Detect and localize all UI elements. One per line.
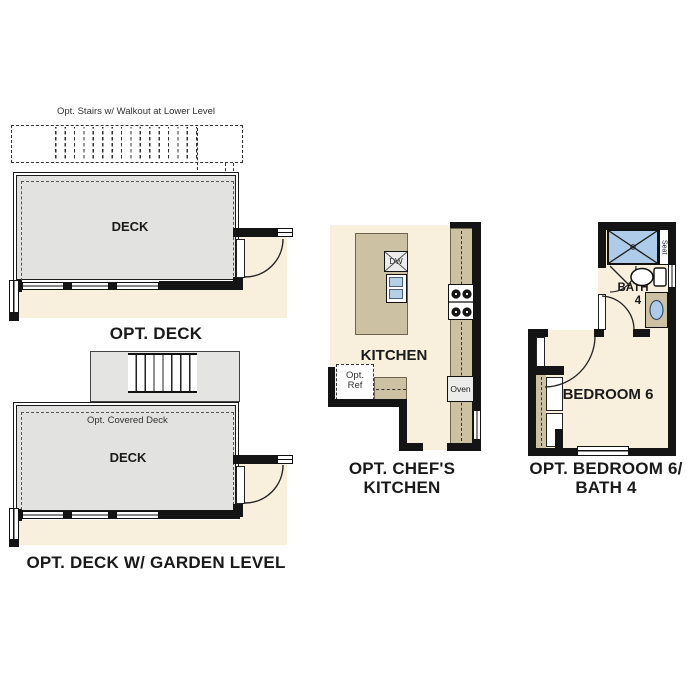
- sink-basin: [389, 289, 403, 299]
- railing-segment: [22, 282, 64, 290]
- counter-dashed-line: [376, 389, 406, 390]
- railing-post: [64, 511, 71, 519]
- railing-segment: [116, 282, 159, 290]
- door-leaf: [236, 239, 245, 278]
- stair-treads: [128, 353, 197, 393]
- bath-room-label-line2: 4: [635, 295, 641, 307]
- seat-label: Seat: [661, 240, 668, 254]
- wall-corner: [233, 277, 243, 290]
- cooktop: [448, 284, 474, 320]
- closet-door-panel: [546, 377, 563, 411]
- door-leaf: [598, 294, 606, 330]
- closet-rod-dashed-line: [541, 377, 542, 446]
- bedroom-room-label: BEDROOM 6: [563, 386, 654, 403]
- railing-segment: [116, 511, 159, 519]
- stairs-note: Opt. Stairs w/ Walkout at Lower Level: [57, 106, 215, 117]
- floorplan-canvas: Opt. Stairs w/ Walkout at Lower Level DE…: [0, 0, 687, 687]
- house-wall: [399, 443, 423, 451]
- railing-segment: [71, 511, 109, 519]
- counter-dashed-line: [461, 231, 462, 441]
- oven: Oven: [447, 376, 474, 402]
- door-leaf: [236, 466, 245, 504]
- kitchen-room-label: KITCHEN: [361, 347, 428, 364]
- stair-treads: [47, 127, 197, 161]
- wall-corner: [233, 504, 243, 517]
- railing-segment: [22, 511, 64, 519]
- window: [473, 410, 481, 440]
- house-wall: [328, 399, 407, 407]
- window: [577, 446, 629, 456]
- section-caption-line1: OPT. CHEF'S: [349, 459, 455, 479]
- kitchen-sink: [386, 274, 407, 303]
- window: [277, 455, 293, 464]
- house-wall: [633, 329, 650, 337]
- counter-cap: [447, 443, 481, 451]
- railing-segment: [71, 282, 109, 290]
- interior-floor: [13, 290, 287, 318]
- house-wall: [159, 281, 240, 290]
- covered-deck-note: Opt. Covered Deck: [87, 415, 168, 426]
- house-wall: [159, 510, 240, 519]
- house-wall: [668, 222, 676, 456]
- deck-room-label: DECK: [110, 450, 147, 465]
- window: [277, 228, 293, 237]
- oven-label: Oven: [450, 384, 470, 394]
- section-caption: OPT. DECK: [110, 324, 202, 344]
- railing-post: [109, 282, 116, 290]
- house-wall: [528, 329, 536, 456]
- interior-floor: [13, 520, 287, 545]
- house-wall: [594, 329, 604, 337]
- shower: [607, 229, 659, 265]
- house-wall: [598, 222, 606, 268]
- section-caption-line2: KITCHEN: [364, 478, 441, 498]
- bath-room-label-line1: BATH: [617, 282, 648, 294]
- closet-wall: [555, 429, 563, 448]
- dishwasher: DW: [384, 251, 408, 272]
- closet-wall: [534, 366, 564, 375]
- dishwasher-label: DW: [388, 257, 403, 266]
- window: [9, 508, 19, 541]
- bath-vanity: [645, 292, 668, 328]
- railing-post: [109, 511, 116, 519]
- sink-basin: [389, 277, 403, 287]
- section-caption-line1: OPT. BEDROOM 6/: [529, 459, 682, 479]
- window: [668, 264, 676, 288]
- wall-corner: [9, 539, 19, 547]
- section-caption: OPT. DECK W/ GARDEN LEVEL: [26, 553, 285, 573]
- railing-post: [64, 282, 71, 290]
- section-caption-line2: BATH 4: [575, 478, 636, 498]
- house-wall: [233, 228, 278, 237]
- shower-seat: Seat: [659, 229, 669, 265]
- deck-room-label: DECK: [112, 219, 149, 234]
- opt-ref-label-line2: Ref: [337, 381, 373, 391]
- house-wall: [233, 455, 278, 464]
- wall-corner: [9, 312, 19, 321]
- window: [9, 280, 19, 313]
